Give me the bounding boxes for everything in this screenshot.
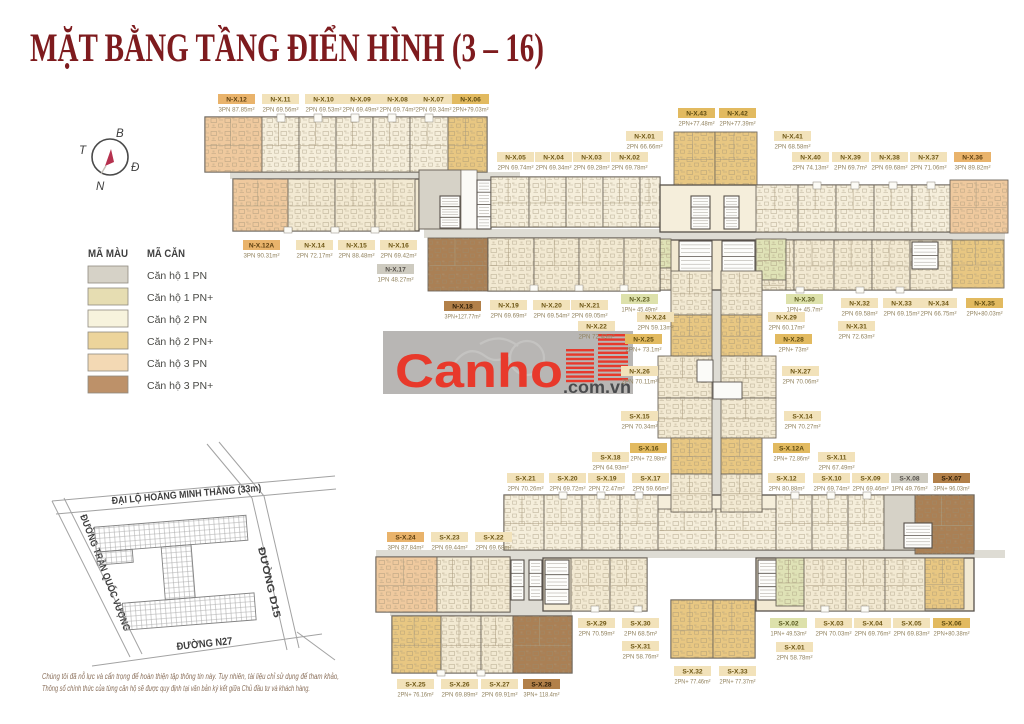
svg-text:2PN 70.03m²: 2PN 70.03m² [816, 632, 852, 638]
svg-text:Căn hộ 1 PN: Căn hộ 1 PN [147, 270, 207, 282]
svg-text:S-X.32: S-X.32 [682, 669, 702, 676]
svg-text:2PN 69.28m²: 2PN 69.28m² [574, 166, 610, 172]
svg-text:2PN 69.91m²: 2PN 69.91m² [482, 693, 518, 699]
svg-text:N-X.20: N-X.20 [541, 303, 562, 310]
svg-text:2PN 69.89m²: 2PN 69.89m² [442, 693, 478, 699]
svg-text:S-X.06: S-X.06 [941, 621, 961, 628]
svg-text:2PN+80.38m²: 2PN+80.38m² [934, 632, 970, 638]
svg-text:2PN+ 77.37m²: 2PN+ 77.37m² [720, 680, 756, 686]
svg-text:2PN 68.58m²: 2PN 68.58m² [775, 145, 811, 151]
svg-text:N-X.42: N-X.42 [727, 111, 748, 118]
svg-text:3PN+ 118.4m²: 3PN+ 118.4m² [524, 693, 560, 699]
svg-text:S-X.23: S-X.23 [439, 535, 459, 542]
svg-text:N-X.23: N-X.23 [629, 297, 650, 304]
svg-text:2PN 74.13m²: 2PN 74.13m² [793, 166, 829, 172]
svg-text:2PN 70.34m²: 2PN 70.34m² [622, 425, 658, 431]
svg-text:N-X.06: N-X.06 [460, 97, 481, 104]
svg-text:N: N [96, 181, 105, 193]
svg-text:2PN 80.88m²: 2PN 80.88m² [769, 487, 805, 493]
svg-text:N-X.30: N-X.30 [794, 297, 815, 304]
svg-text:2PN 58.78m²: 2PN 58.78m² [777, 656, 813, 662]
svg-text:S-X.02: S-X.02 [778, 621, 798, 628]
svg-text:2PN 69.53m²: 2PN 69.53m² [306, 108, 342, 114]
svg-text:N-X.14: N-X.14 [304, 243, 325, 250]
svg-text:S-X.11: S-X.11 [827, 455, 847, 462]
svg-text:2PN 69.69m²: 2PN 69.69m² [491, 314, 527, 320]
svg-text:N-X.19: N-X.19 [498, 303, 519, 310]
svg-text:2PN 69.15m²: 2PN 69.15m² [884, 312, 920, 318]
svg-text:N-X.29: N-X.29 [776, 315, 797, 322]
svg-text:S-X.04: S-X.04 [862, 621, 882, 628]
svg-text:2PN 69.74m²: 2PN 69.74m² [498, 166, 534, 172]
svg-text:B: B [116, 128, 124, 140]
svg-text:S-X.30: S-X.30 [630, 621, 650, 628]
svg-text:1PN 48.27m²: 1PN 48.27m² [378, 278, 414, 284]
svg-text:Căn hộ 1 PN+: Căn hộ 1 PN+ [147, 292, 213, 304]
svg-text:N-X.12: N-X.12 [226, 97, 247, 104]
svg-text:N-X.25: N-X.25 [633, 337, 654, 344]
svg-text:N-X.31: N-X.31 [846, 324, 867, 331]
svg-text:N-X.22: N-X.22 [586, 324, 607, 331]
svg-text:N-X.36: N-X.36 [962, 155, 983, 162]
svg-text:2PN 69.74m²: 2PN 69.74m² [814, 487, 850, 493]
svg-text:2PN 67.49m²: 2PN 67.49m² [819, 466, 855, 472]
svg-text:S-X.16: S-X.16 [638, 446, 658, 453]
svg-text:2PN 69.68m²: 2PN 69.68m² [476, 546, 512, 552]
svg-text:S-X.27: S-X.27 [489, 682, 509, 689]
svg-text:2PN+ 77.46m²: 2PN+ 77.46m² [675, 680, 711, 686]
svg-text:N-X.11: N-X.11 [270, 97, 290, 104]
svg-text:N-X.35: N-X.35 [974, 301, 995, 308]
svg-text:N-X.27: N-X.27 [790, 369, 811, 376]
svg-text:N-X.24: N-X.24 [645, 315, 666, 322]
svg-text:2PN+79.03m²: 2PN+79.03m² [453, 108, 489, 114]
svg-text:S-X.28: S-X.28 [531, 682, 551, 689]
svg-text:2PN 70.06m²: 2PN 70.06m² [783, 380, 819, 386]
svg-text:N-X.37: N-X.37 [918, 155, 939, 162]
svg-text:S-X.14: S-X.14 [792, 414, 812, 421]
svg-text:2PN+77.48m²: 2PN+77.48m² [679, 122, 715, 128]
svg-text:N-X.34: N-X.34 [928, 301, 949, 308]
svg-text:S-X.29: S-X.29 [586, 621, 606, 628]
svg-text:S-X.10: S-X.10 [821, 476, 841, 483]
svg-text:Căn hộ 2 PN: Căn hộ 2 PN [147, 314, 207, 326]
svg-text:2PN+ 72.98m²: 2PN+ 72.98m² [631, 457, 667, 463]
svg-text:N-X.43: N-X.43 [686, 111, 707, 118]
svg-text:N-X.15: N-X.15 [346, 243, 367, 250]
svg-text:3PN+ 96.03m²: 3PN+ 96.03m² [934, 487, 970, 493]
svg-text:N-X.12A: N-X.12A [249, 243, 275, 250]
svg-text:S-X.01: S-X.01 [784, 645, 804, 652]
svg-text:2PN+ 76.16m²: 2PN+ 76.16m² [398, 693, 434, 699]
svg-text:2PN 69.76m²: 2PN 69.76m² [855, 632, 891, 638]
svg-text:S-X.20: S-X.20 [557, 476, 577, 483]
svg-text:3PN 87.85m²: 3PN 87.85m² [219, 108, 255, 114]
svg-text:2PN 64.93m²: 2PN 64.93m² [593, 466, 629, 472]
svg-text:2PN+80.03m²: 2PN+80.03m² [967, 312, 1003, 318]
svg-text:2PN 70.59m²: 2PN 70.59m² [579, 632, 615, 638]
svg-text:Chúng tôi đã nỗ lực và cẩn trọ: Chúng tôi đã nỗ lực và cẩn trọng để hoàn… [42, 672, 339, 681]
svg-text:S-X.22: S-X.22 [483, 535, 503, 542]
svg-text:2PN 66.66m²: 2PN 66.66m² [627, 145, 663, 151]
svg-text:1PN+ 49.53m²: 1PN+ 49.53m² [771, 632, 807, 638]
svg-text:2PN 70.11m²: 2PN 70.11m² [622, 380, 658, 386]
svg-text:S-X.05: S-X.05 [901, 621, 921, 628]
svg-text:N-X.41: N-X.41 [782, 134, 803, 141]
svg-text:Thông số chính thức của từng c: Thông số chính thức của từng căn hộ sẽ đ… [42, 684, 310, 693]
svg-text:N-X.09: N-X.09 [350, 97, 371, 104]
svg-text:2PN+ 73.1m²: 2PN+ 73.1m² [626, 348, 662, 354]
svg-text:S-X.15: S-X.15 [629, 414, 649, 421]
svg-text:2PN 70.26m²: 2PN 70.26m² [508, 487, 544, 493]
svg-text:MÃ CĂN: MÃ CĂN [147, 247, 185, 260]
svg-text:2PN+ 72.86m²: 2PN+ 72.86m² [774, 457, 810, 463]
svg-text:2PN 69.54m²: 2PN 69.54m² [534, 314, 570, 320]
svg-text:N-X.33: N-X.33 [891, 301, 912, 308]
svg-text:2PN 69.34m²: 2PN 69.34m² [416, 108, 452, 114]
svg-text:2PN 60.17m²: 2PN 60.17m² [769, 326, 805, 332]
svg-text:S-X.12A: S-X.12A [779, 446, 804, 453]
svg-text:2PN 69.58m²: 2PN 69.58m² [842, 312, 878, 318]
svg-text:2PN 69.68m²: 2PN 69.68m² [872, 166, 908, 172]
svg-text:N-X.10: N-X.10 [313, 97, 334, 104]
svg-text:2PN 88.48m²: 2PN 88.48m² [339, 254, 375, 260]
svg-text:N-X.21: N-X.21 [579, 303, 600, 310]
svg-text:Căn hộ 2 PN+: Căn hộ 2 PN+ [147, 336, 213, 348]
svg-text:2PN 69.74m²: 2PN 69.74m² [380, 108, 416, 114]
svg-text:2PN 69.44m²: 2PN 69.44m² [432, 546, 468, 552]
svg-text:2PN 69.56m²: 2PN 69.56m² [263, 108, 299, 114]
svg-text:N-X.28: N-X.28 [783, 337, 804, 344]
svg-text:2PN 59.13m²: 2PN 59.13m² [638, 326, 674, 332]
svg-text:S-X.09: S-X.09 [860, 476, 880, 483]
svg-text:T: T [79, 145, 87, 157]
svg-text:2PN 69.49m²: 2PN 69.49m² [343, 108, 379, 114]
svg-text:N-X.16: N-X.16 [388, 243, 409, 250]
svg-text:MẶT BẰNG TẦNG ĐIỂN HÌNH (3 – 1: MẶT BẰNG TẦNG ĐIỂN HÌNH (3 – 16) [30, 24, 544, 70]
svg-text:2PN+77.39m²: 2PN+77.39m² [720, 122, 756, 128]
svg-text:N-X.01: N-X.01 [634, 134, 655, 141]
svg-text:S-X.33: S-X.33 [727, 669, 747, 676]
svg-text:2PN 69.34m²: 2PN 69.34m² [536, 166, 572, 172]
svg-text:S-X.17: S-X.17 [640, 476, 660, 483]
svg-text:2PN 69.83m²: 2PN 69.83m² [894, 632, 930, 638]
svg-text:S-X.18: S-X.18 [600, 455, 620, 462]
svg-text:2PN 72.43m²: 2PN 72.43m² [579, 335, 615, 341]
svg-text:N-X.32: N-X.32 [849, 301, 870, 308]
svg-text:2PN 72.47m²: 2PN 72.47m² [589, 487, 625, 493]
svg-text:N-X.40: N-X.40 [800, 155, 821, 162]
svg-text:2PN 71.06m²: 2PN 71.06m² [911, 166, 947, 172]
svg-text:N-X.05: N-X.05 [505, 155, 526, 162]
svg-text:3PN 89.82m²: 3PN 89.82m² [955, 166, 991, 172]
svg-text:S-X.31: S-X.31 [630, 644, 650, 651]
svg-text:2PN 69.7m²: 2PN 69.7m² [834, 166, 867, 172]
svg-text:2PN 59.66m²: 2PN 59.66m² [633, 487, 669, 493]
svg-text:S-X.07: S-X.07 [941, 476, 961, 483]
svg-text:S-X.08: S-X.08 [899, 476, 919, 483]
svg-text:N-X.02: N-X.02 [619, 155, 640, 162]
svg-text:S-X.03: S-X.03 [823, 621, 843, 628]
svg-text:N-X.18: N-X.18 [452, 304, 473, 311]
svg-text:2PN 69.42m²: 2PN 69.42m² [381, 254, 417, 260]
svg-text:2PN 69.46m²: 2PN 69.46m² [853, 487, 889, 493]
svg-text:2PN 72.17m²: 2PN 72.17m² [297, 254, 333, 260]
svg-text:2PN 70.27m²: 2PN 70.27m² [785, 425, 821, 431]
svg-text:3PN 87.84m²: 3PN 87.84m² [388, 546, 424, 552]
svg-text:Căn hộ 3 PN+: Căn hộ 3 PN+ [147, 380, 213, 392]
svg-text:2PN+ 73m²: 2PN+ 73m² [779, 348, 809, 354]
svg-text:N-X.39: N-X.39 [840, 155, 861, 162]
svg-text:2PN 66.75m²: 2PN 66.75m² [921, 312, 957, 318]
svg-text:3PN 90.31m²: 3PN 90.31m² [244, 254, 280, 260]
svg-text:N-X.08: N-X.08 [387, 97, 408, 104]
svg-text:N-X.04: N-X.04 [543, 155, 564, 162]
svg-text:N-X.38: N-X.38 [879, 155, 900, 162]
svg-text:N-X.17: N-X.17 [385, 267, 406, 274]
svg-text:Canho: Canho [395, 344, 563, 397]
svg-text:2PN 69.72m²: 2PN 69.72m² [550, 487, 586, 493]
svg-text:MÃ MÀU: MÃ MÀU [88, 247, 128, 260]
svg-text:2PN 69.78m²: 2PN 69.78m² [612, 166, 648, 172]
svg-text:N-X.26: N-X.26 [629, 369, 650, 376]
svg-text:S-X.21: S-X.21 [515, 476, 535, 483]
svg-text:S-X.25: S-X.25 [405, 682, 425, 689]
svg-text:S-X.26: S-X.26 [449, 682, 469, 689]
svg-text:Đ: Đ [131, 162, 140, 174]
svg-text:3PN+127.77m²: 3PN+127.77m² [445, 315, 481, 321]
svg-text:Căn hộ 3 PN: Căn hộ 3 PN [147, 358, 207, 370]
svg-text:1PN 49.76m²: 1PN 49.76m² [892, 487, 928, 493]
svg-text:N-X.03: N-X.03 [581, 155, 602, 162]
svg-text:2PN 72.63m²: 2PN 72.63m² [839, 335, 875, 341]
svg-text:S-X.19: S-X.19 [596, 476, 616, 483]
svg-text:2PN 68.5m²: 2PN 68.5m² [624, 632, 657, 638]
svg-text:2PN 69.05m²: 2PN 69.05m² [572, 314, 608, 320]
svg-text:N-X.07: N-X.07 [423, 97, 444, 104]
svg-text:2PN 58.76m²: 2PN 58.76m² [623, 655, 659, 661]
svg-text:S-X.24: S-X.24 [395, 535, 415, 542]
svg-text:S-X.12: S-X.12 [776, 476, 796, 483]
